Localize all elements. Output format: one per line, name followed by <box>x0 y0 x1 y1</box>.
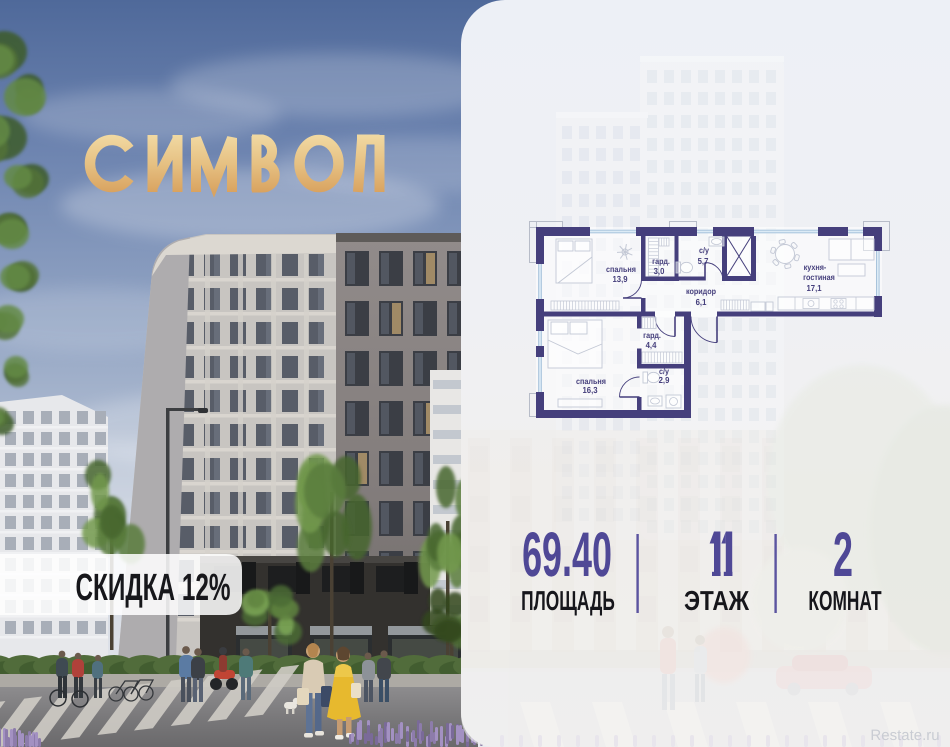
svg-text:3,0: 3,0 <box>654 266 665 276</box>
svg-text:с/у: с/у <box>699 246 709 255</box>
svg-text:Restate.ru: Restate.ru <box>870 727 939 744</box>
svg-text:2: 2 <box>833 520 853 590</box>
svg-text:гард.: гард. <box>643 331 661 340</box>
svg-text:кухня-: кухня- <box>804 263 827 272</box>
svg-text:4,4: 4,4 <box>646 340 657 350</box>
svg-text:2,9: 2,9 <box>659 375 670 385</box>
svg-text:КОМНАТ: КОМНАТ <box>808 585 881 616</box>
svg-text:спальня: спальня <box>606 265 636 274</box>
svg-text:гостиная: гостиная <box>803 273 835 282</box>
svg-text:ПЛОЩАДЬ: ПЛОЩАДЬ <box>521 585 615 616</box>
svg-text:5,7: 5,7 <box>698 256 709 266</box>
svg-text:коридор: коридор <box>686 287 716 296</box>
svg-text:6,1: 6,1 <box>696 297 707 307</box>
svg-text:69.40: 69.40 <box>522 520 612 590</box>
svg-text:17,1: 17,1 <box>806 283 821 293</box>
svg-text:13,9: 13,9 <box>612 274 627 284</box>
svg-text:гард.: гард. <box>652 257 670 266</box>
svg-text:СКИДКА 12%: СКИДКА 12% <box>75 567 230 609</box>
svg-text:ЭТАЖ: ЭТАЖ <box>684 585 749 616</box>
svg-text:16,3: 16,3 <box>582 385 597 395</box>
